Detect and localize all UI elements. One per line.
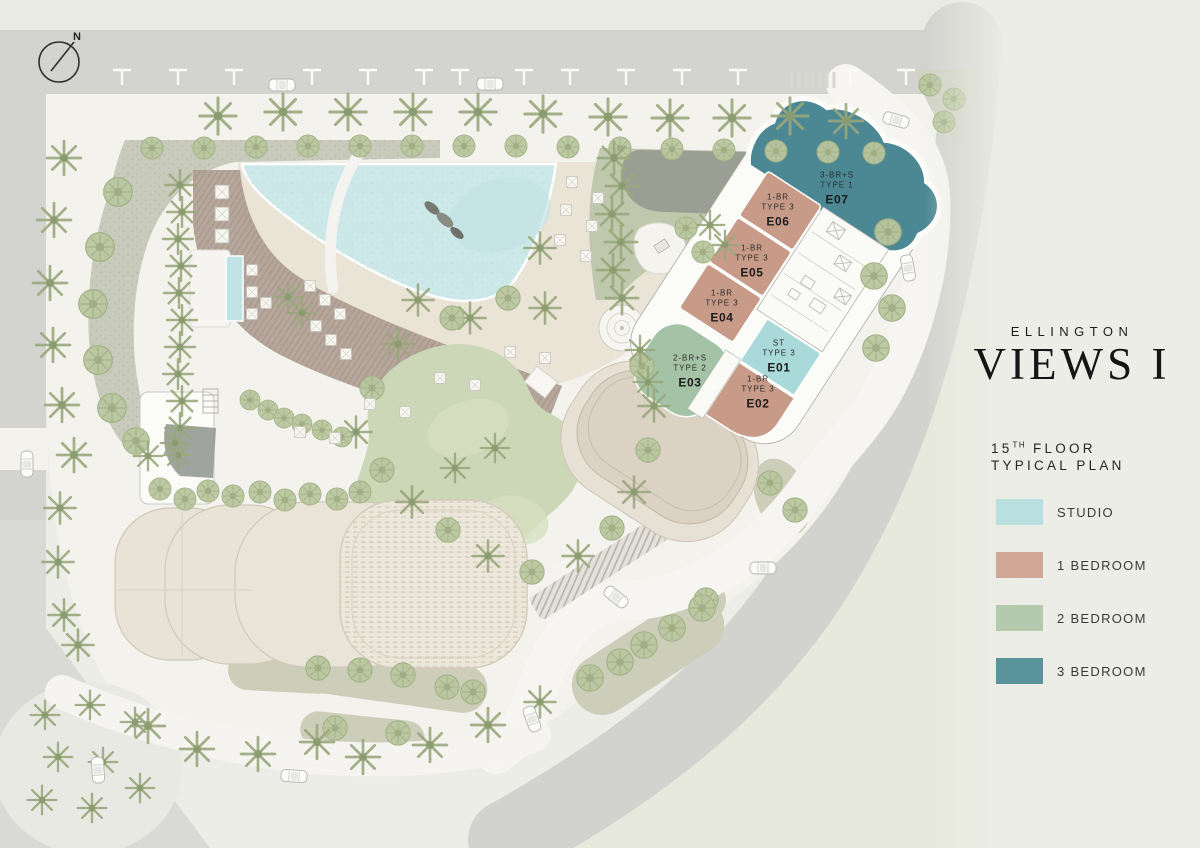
unit-type2: TYPE 3 <box>761 203 794 213</box>
unit-code: E03 <box>673 375 707 391</box>
page-title: VIEWS I <box>972 338 1172 390</box>
unit-code: E06 <box>761 214 794 230</box>
unit-label-e01[interactable]: ST TYPE 3 E01 <box>762 338 795 375</box>
plan-subtitle: 15THFLOOR TYPICAL PLAN <box>991 440 1125 474</box>
legend-item-2-bedroom: 2 BEDROOM <box>996 605 1147 631</box>
unit-label-e07[interactable]: 3-BR+S TYPE 1 E07 <box>820 170 854 207</box>
unit-label-e06[interactable]: 1-BR TYPE 3 E06 <box>761 192 794 229</box>
unit-type2: TYPE 3 <box>705 299 738 309</box>
crosswalk <box>792 72 834 88</box>
site-plan: N <box>0 0 1200 848</box>
unit-code: E07 <box>820 192 854 208</box>
unit-label-e02[interactable]: 1-BR TYPE 3 E02 <box>741 374 774 411</box>
brand-name: ELLINGTON <box>978 324 1166 339</box>
legend-label: 2 BEDROOM <box>1057 611 1147 626</box>
unit-type2: TYPE 3 <box>741 385 774 395</box>
unit-code: E04 <box>705 310 738 326</box>
legend: STUDIO 1 BEDROOM 2 BEDROOM 3 BEDROOM <box>996 499 1147 711</box>
unit-type2: TYPE 3 <box>735 254 768 264</box>
unit-type: 1-BR <box>761 192 794 202</box>
floor-number: 15 <box>991 441 1013 456</box>
legend-item-studio: STUDIO <box>996 499 1147 525</box>
plan-type: TYPICAL PLAN <box>991 457 1125 474</box>
legend-swatch-studio <box>996 499 1043 525</box>
unit-type: 1-BR <box>705 288 738 298</box>
legend-swatch-2-bedroom <box>996 605 1043 631</box>
unit-label-e04[interactable]: 1-BR TYPE 3 E04 <box>705 288 738 325</box>
unit-type2: TYPE 3 <box>762 349 795 359</box>
floor-word: FLOOR <box>1033 441 1096 456</box>
unit-type: ST <box>762 338 795 348</box>
kids-pool-pad <box>190 250 230 327</box>
legend-item-1-bedroom: 1 BEDROOM <box>996 552 1147 578</box>
north-label: N <box>73 31 81 43</box>
panel-fade <box>925 0 1200 848</box>
legend-label: 1 BEDROOM <box>1057 558 1147 573</box>
legend-label: STUDIO <box>1057 505 1114 520</box>
unit-code: E02 <box>741 396 774 412</box>
unit-type2: TYPE 2 <box>673 364 707 374</box>
unit-label-e05[interactable]: 1-BR TYPE 3 E05 <box>735 243 768 280</box>
unit-type: 3-BR+S <box>820 170 854 180</box>
kids-pool <box>226 256 243 321</box>
unit-type: 1-BR <box>735 243 768 253</box>
unit-type: 1-BR <box>741 374 774 384</box>
legend-swatch-1-bedroom <box>996 552 1043 578</box>
floorplan-page: N 3-BR+S TYPE 1 E07 1-BR TYPE 3 E06 1-BR… <box>0 0 1200 848</box>
legend-item-3-bedroom: 3 BEDROOM <box>996 658 1147 684</box>
legend-label: 3 BEDROOM <box>1057 664 1147 679</box>
unit-type2: TYPE 1 <box>820 181 854 191</box>
floor-ordinal: TH <box>1013 441 1027 450</box>
legend-swatch-3-bedroom <box>996 658 1043 684</box>
unit-code: E05 <box>735 265 768 281</box>
unit-type: 2-BR+S <box>673 353 707 363</box>
unit-label-e03[interactable]: 2-BR+S TYPE 2 E03 <box>673 353 707 390</box>
